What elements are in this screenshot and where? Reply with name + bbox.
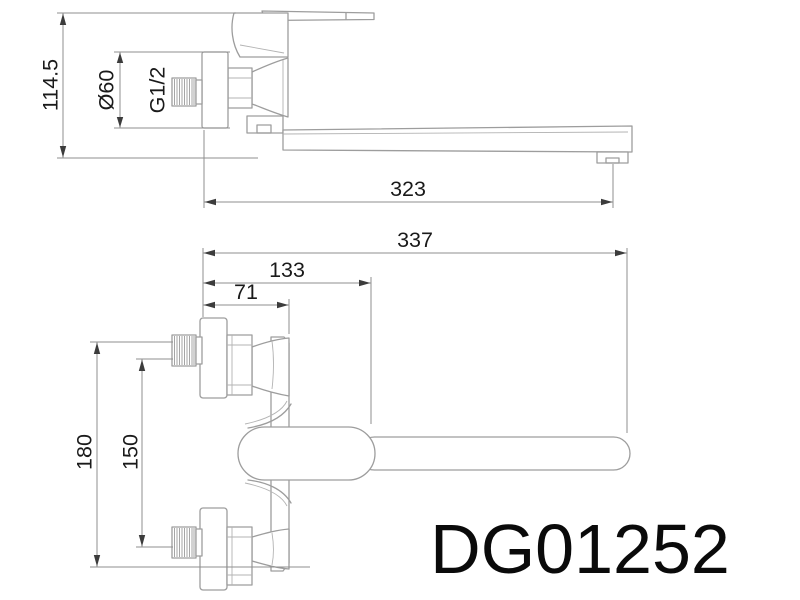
mixer-body-front [238, 427, 375, 480]
inlet-flare-top [252, 338, 289, 396]
escutcheon-side [202, 52, 228, 128]
technical-drawing-page: 114.5 Ø60 G1/2 323 [0, 0, 800, 600]
spout-side [283, 126, 632, 152]
inlet-top [172, 318, 252, 398]
dim-label-114-5: 114.5 [39, 59, 63, 111]
thread-collar-side [196, 80, 202, 104]
nut-bottom [227, 527, 252, 585]
dim-label-337: 337 [397, 228, 433, 252]
side-view: 114.5 Ø60 G1/2 323 [39, 11, 632, 208]
dim-label-323: 323 [390, 177, 426, 201]
nut-top [227, 335, 252, 395]
inlet-bottom [172, 508, 252, 590]
dim-label-71: 71 [234, 280, 258, 304]
thread-size-label: G1/2 [146, 67, 170, 114]
product-code: DG01252 [430, 510, 730, 588]
escutcheon-top [200, 318, 227, 398]
side-view-parts [172, 11, 632, 163]
thread-collar-bottom [196, 529, 202, 556]
dim-label-d60: Ø60 [95, 70, 119, 111]
dimension-inlet-centres: 150 [119, 359, 173, 547]
nut-side [228, 68, 252, 108]
spout-front [358, 437, 630, 470]
inlet-flare-bottom [252, 529, 289, 569]
dimension-overall-length: 337 [203, 228, 627, 433]
dim-label-150: 150 [119, 434, 143, 470]
faucet-technical-drawing: 114.5 Ø60 G1/2 323 [0, 0, 800, 600]
body-upper [232, 13, 288, 57]
escutcheon-bottom [200, 508, 227, 590]
dim-label-180: 180 [73, 434, 97, 470]
thread-collar-top [196, 337, 202, 364]
dim-label-133: 133 [269, 258, 305, 282]
